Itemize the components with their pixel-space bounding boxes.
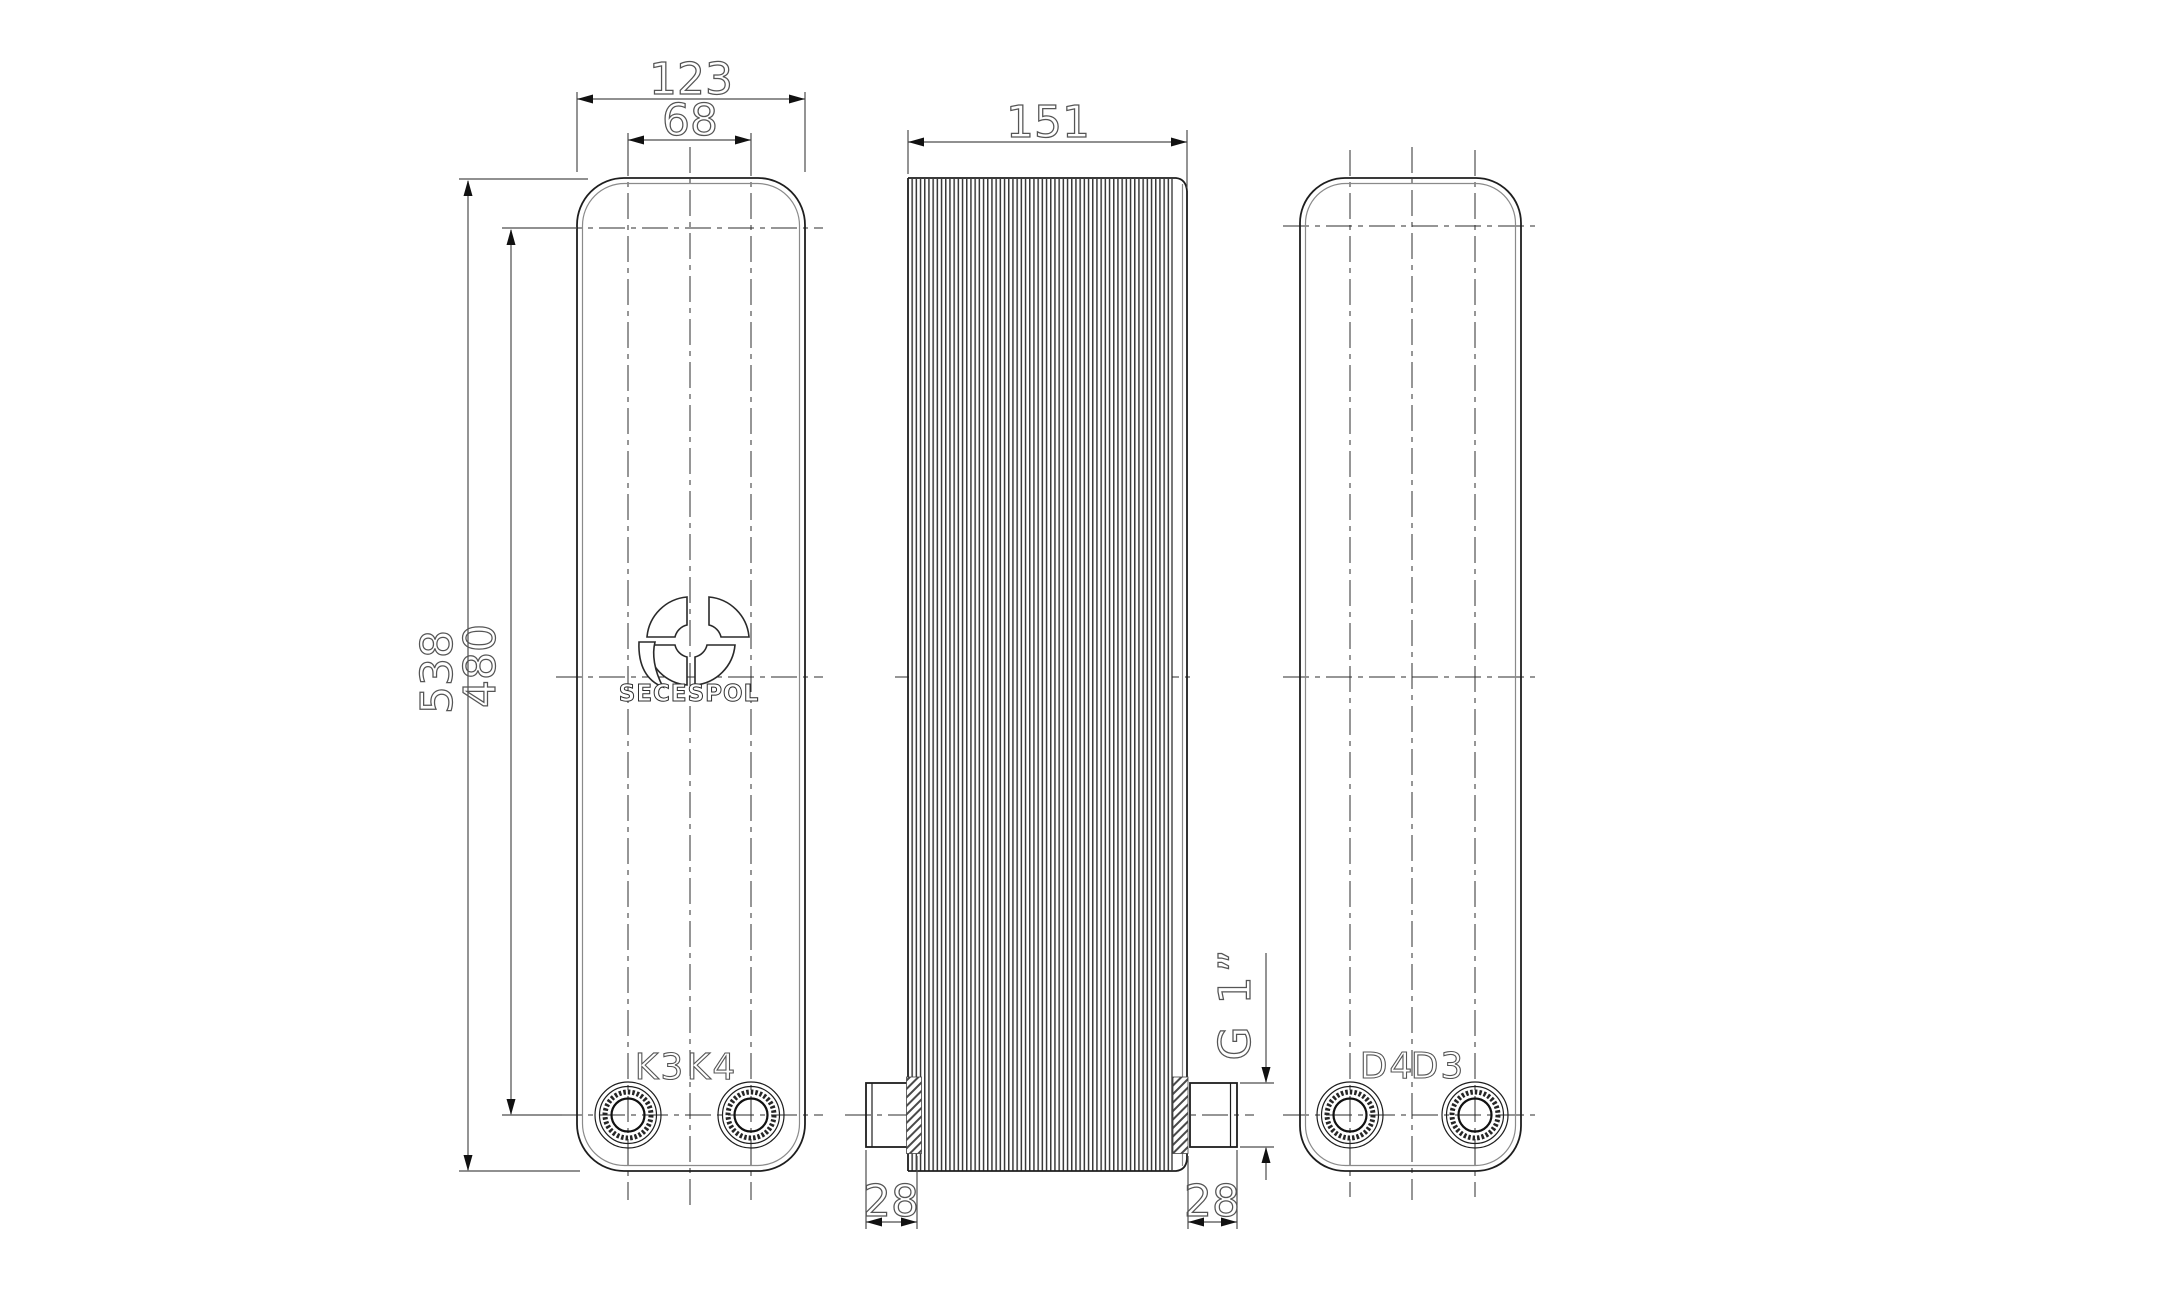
dim-text-28-right: 28 <box>1184 1176 1240 1227</box>
dim-text-151: 151 <box>1006 97 1090 148</box>
port-label-d4: D4 <box>1360 1046 1415 1087</box>
dim-stub-right: 28 <box>1184 1150 1240 1229</box>
front-view: K3 K4 SECESPOL <box>556 147 823 1205</box>
port-label-d3: D3 <box>1411 1046 1466 1087</box>
dim-text-68: 68 <box>662 95 718 146</box>
front-plate-outline <box>577 178 805 1171</box>
dim-connection-thread: G 1” <box>1210 946 1274 1180</box>
heat-exchanger-drawing: K3 K4 SECESPOL <box>0 0 2161 1295</box>
back-plate-inner-outline <box>1306 184 1516 1166</box>
back-view: D4 D3 <box>1283 147 1537 1200</box>
dim-text-480: 480 <box>455 624 506 708</box>
dim-stack-depth: 151 <box>908 97 1187 188</box>
logo-quadrant-bottom-right <box>695 645 735 685</box>
technical-drawing-canvas: K3 K4 SECESPOL <box>0 0 2161 1295</box>
logo-quadrant-top-left <box>647 597 687 637</box>
back-view-centerlines <box>1283 147 1537 1200</box>
dim-text-thread: G 1” <box>1210 946 1261 1061</box>
left-stub-thread-hatch <box>907 1077 922 1154</box>
back-plate-outline <box>1300 178 1521 1171</box>
front-plate-inner-outline <box>583 184 800 1166</box>
right-stub-thread-hatch <box>1173 1077 1188 1154</box>
logo-text: SECESPOL <box>619 681 760 707</box>
port-label-k4: K4 <box>687 1047 738 1088</box>
dim-port-height: 480 <box>455 228 577 1115</box>
port-label-k3: K3 <box>635 1047 686 1088</box>
secespol-logo: SECESPOL <box>619 597 760 707</box>
plate-stack <box>909 179 1172 1171</box>
side-view <box>845 178 1254 1171</box>
dim-text-28-left: 28 <box>863 1176 919 1227</box>
logo-quadrant-top-right <box>709 597 749 637</box>
